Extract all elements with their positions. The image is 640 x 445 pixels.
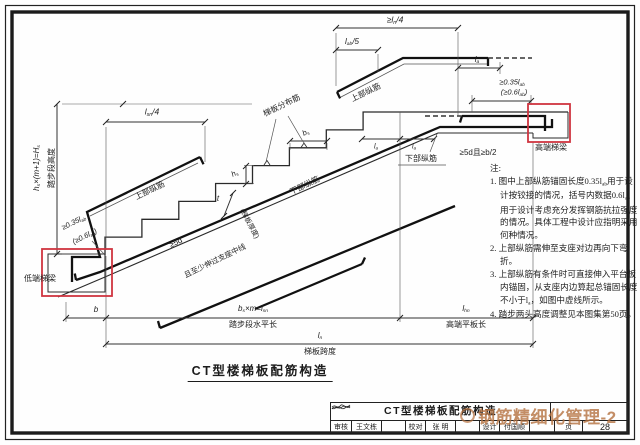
- distribution-bar-marks: [264, 143, 307, 165]
- page-number: 28: [582, 421, 627, 432]
- bottom-bar-main: [75, 119, 552, 280]
- drawing-sheet: hs×(m+1)=Hs 踏步段高度 lsn/4 ≥ln/4 lab/5 la 上…: [0, 0, 640, 445]
- dim-la-1: la: [374, 143, 378, 150]
- title-block-row1: CT型楼梯板配筋构造: [331, 403, 627, 421]
- note-3: 3. 上部纵筋有条件时可直接伸入平台板内锚固，从支座内边算起总锚固长度不小于la…: [490, 268, 638, 308]
- checker-signature: [455, 421, 479, 432]
- title-block: CT型楼梯板配筋构造 审核 王文栋 校对 张 明 设计 付国顺 页 28: [330, 402, 628, 433]
- dim-anchor-06-high: (≥0.6lab): [501, 89, 527, 98]
- note-2: 2. 上部纵筋需伸至支座对边再向下弯折。: [490, 242, 638, 268]
- dim-5d-b2: ≥5d且≥b/2: [460, 149, 497, 157]
- atlas-number-cell: [550, 403, 627, 420]
- designer-label: 设计: [479, 421, 499, 432]
- page-label: 页: [554, 421, 582, 432]
- label-bottom-bar-flat: 下部纵筋: [405, 155, 437, 163]
- dim-la-2: la: [412, 143, 416, 150]
- dim-anchor-035-high: ≥0.35lab: [499, 79, 525, 88]
- notes-heading: 注:: [490, 162, 638, 175]
- reviewer-label: 审核: [331, 421, 351, 432]
- designer-signature: [529, 421, 554, 432]
- title-block-drawing-title: CT型楼梯板配筋构造: [331, 403, 550, 420]
- note-1: 1. 图中上部纵筋锚固长度0.35lab用于设计按铰接的情况，括号内数据0.6l…: [490, 175, 638, 242]
- checker-label: 校对: [405, 421, 425, 432]
- dim-lsn-text: 踏步段水平长: [229, 321, 277, 329]
- dim-lsn-total: bs×m=lsn: [238, 305, 268, 315]
- dim-lhn: lhn: [462, 305, 469, 315]
- reviewer-name: 王文栋: [351, 421, 381, 432]
- label-low-beam: 低端梯梁: [24, 275, 56, 283]
- dim-la-top: la: [475, 56, 480, 66]
- dim-thickness-t: t: [217, 195, 219, 203]
- reviewer-signature: [381, 421, 405, 432]
- dim-step-height-text: 踏步段高度: [48, 148, 56, 188]
- note-4: 4. 踏步两头高度调整见本图集第50页。: [490, 308, 638, 321]
- label-high-beam: 高端梯梁: [535, 144, 567, 152]
- dim-lsn4: lsn/4: [145, 108, 160, 119]
- figure-title: CT型楼梯板配筋构造: [188, 360, 333, 382]
- title-block-row2: 审核 王文栋 校对 张 明 设计 付国顺 页 28: [331, 421, 627, 432]
- dim-lhn-text: 高端平板长: [446, 321, 486, 329]
- top-bar-at-high-beam: [460, 116, 545, 131]
- dim-ln-text: 梯板跨度: [304, 348, 336, 356]
- notes-block: 注: 1. 图中上部纵筋锚固长度0.35lab用于设计按铰接的情况，括号内数据0…: [490, 162, 638, 321]
- high-beam-highlight-box: [528, 104, 570, 142]
- dim-ln: ln: [318, 332, 323, 342]
- dim-ln4: ≥ln/4: [387, 16, 404, 27]
- dim-b: b: [94, 306, 98, 314]
- checker-name: 张 明: [425, 421, 455, 432]
- designer-name: 付国顺: [499, 421, 529, 432]
- dim-step-total-height-formula: hs×(m+1)=Hs: [33, 145, 43, 191]
- dim-lab5: lab/5: [345, 38, 359, 48]
